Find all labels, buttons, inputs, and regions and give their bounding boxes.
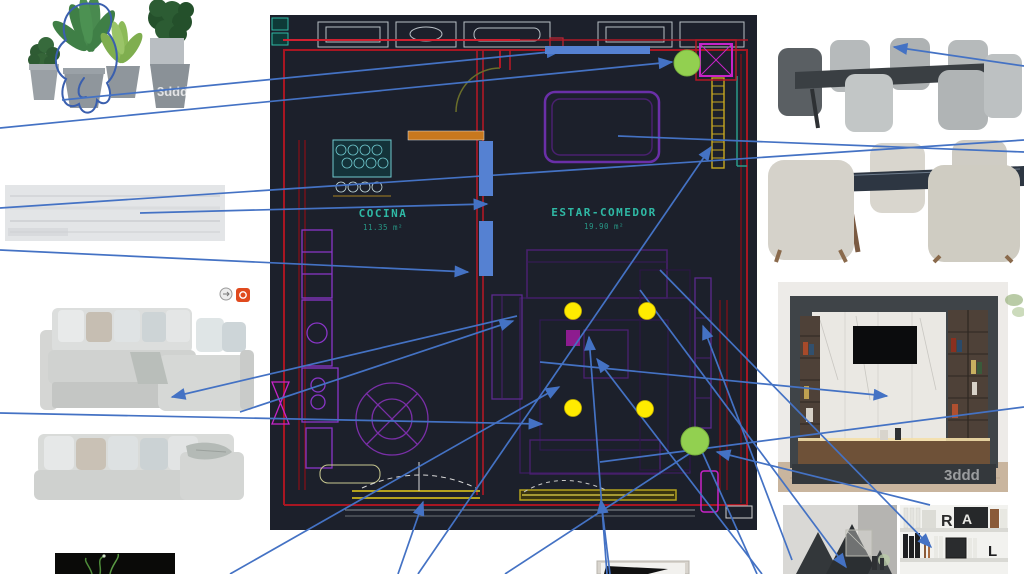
- blue-bar-marker[interactable]: [479, 141, 493, 196]
- dark-plant-photo[interactable]: [55, 553, 175, 574]
- room-area-cocina: 11.35 m²: [363, 223, 403, 232]
- floorplan-cad-drawing[interactable]: COCINA 11.35 m² ESTAR-COMEDOR 19.90 m²: [270, 15, 757, 530]
- room-area-estar: 19.90 m²: [584, 222, 624, 231]
- yellow-dot-marker[interactable]: [639, 303, 656, 320]
- sofa-photo-2[interactable]: [34, 434, 244, 500]
- plant-tall-foliage: [148, 0, 194, 43]
- green-circle-marker[interactable]: [674, 50, 700, 76]
- decor-letter-r: R: [941, 513, 953, 530]
- bookshelf-decor-photo[interactable]: R A L: [900, 505, 1008, 574]
- yellow-dot-marker[interactable]: [565, 303, 582, 320]
- record-badge-icon[interactable]: [236, 288, 250, 302]
- tv-screen: [853, 326, 917, 364]
- moodboard-slide: 3ddd: [0, 0, 1024, 574]
- sofa-photo-1[interactable]: [40, 288, 254, 411]
- green-circle-marker[interactable]: [681, 427, 709, 455]
- room-label-estar: ESTAR-COMEDOR: [551, 206, 657, 219]
- wood-floor-sample-photo[interactable]: [5, 185, 225, 241]
- blue-bar-marker[interactable]: [479, 221, 493, 276]
- decor-letter-a: A: [962, 511, 972, 527]
- door-threshold: [408, 131, 484, 140]
- tv-unit-watermark: 3ddd: [944, 467, 980, 484]
- decor-letter-l: L: [988, 543, 997, 560]
- plants-watermark: 3ddd: [157, 84, 188, 99]
- blue-bar-marker[interactable]: [545, 46, 650, 54]
- tv-wall-unit-photo[interactable]: 3ddd: [778, 282, 1024, 492]
- yellow-dot-marker[interactable]: [637, 401, 654, 418]
- room-label-cocina: COCINA: [359, 207, 408, 220]
- yellow-dot-marker[interactable]: [565, 400, 582, 417]
- pyramid-decor-photo[interactable]: [783, 505, 897, 574]
- bottom-tv-photo[interactable]: [597, 561, 689, 574]
- dining-set-photo-1[interactable]: [778, 38, 1022, 132]
- dining-set-photo-2[interactable]: [768, 140, 1024, 262]
- radiator-symbol: [712, 78, 724, 168]
